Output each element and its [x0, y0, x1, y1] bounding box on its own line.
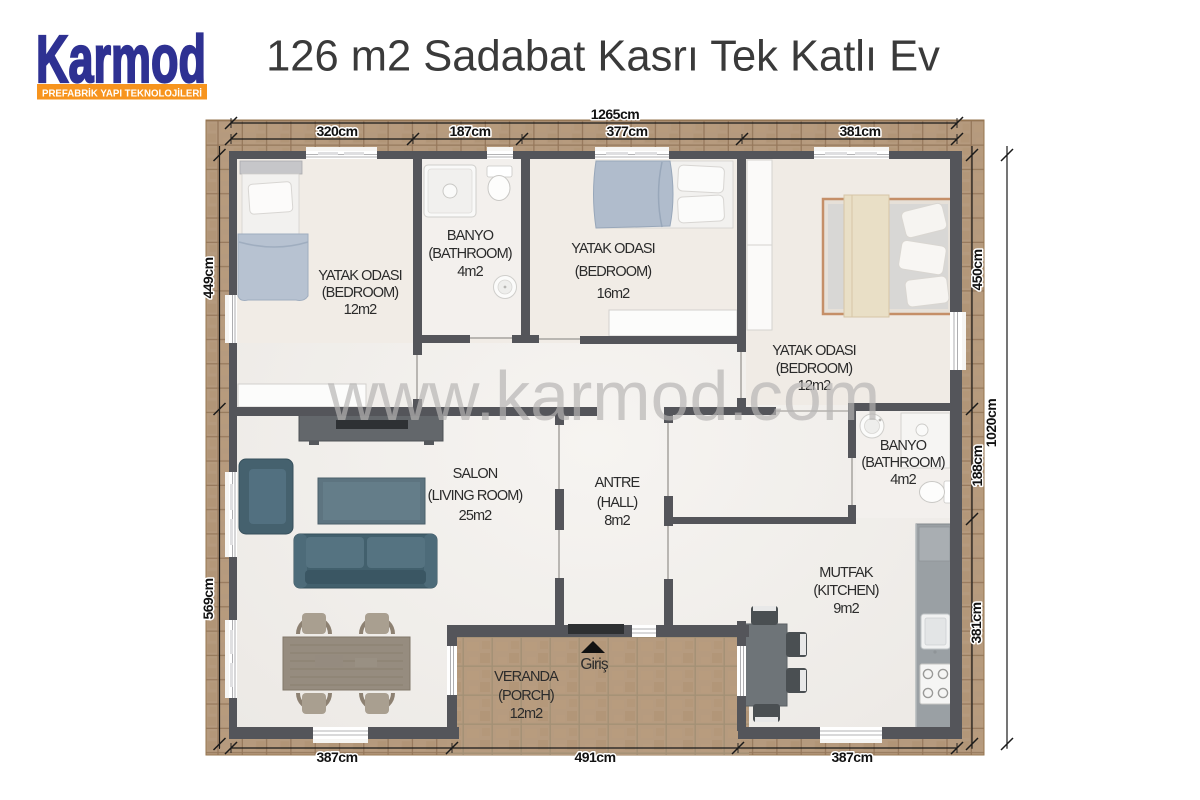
svg-text:4m2: 4m2 [890, 472, 916, 488]
svg-text:387cm: 387cm [831, 749, 872, 765]
svg-text:9m2: 9m2 [833, 601, 859, 617]
svg-text:(PORCH): (PORCH) [498, 688, 554, 704]
svg-text:450cm: 450cm [969, 249, 985, 290]
svg-text:12m2: 12m2 [344, 302, 378, 318]
svg-text:YATAK ODASI: YATAK ODASI [571, 241, 655, 257]
svg-text:(BEDROOM): (BEDROOM) [322, 285, 399, 301]
svg-text:377cm: 377cm [606, 123, 647, 139]
svg-text:491cm: 491cm [574, 749, 615, 765]
svg-text:16m2: 16m2 [597, 286, 631, 302]
svg-text:187cm: 187cm [449, 123, 490, 139]
svg-text:569cm: 569cm [200, 578, 216, 619]
svg-text:MUTFAK: MUTFAK [819, 565, 874, 581]
svg-text:PREFABRİK YAPI TEKNOLOJİLERİ: PREFABRİK YAPI TEKNOLOJİLERİ [42, 87, 202, 100]
svg-text:(BEDROOM): (BEDROOM) [575, 264, 652, 280]
svg-text:4m2: 4m2 [457, 264, 483, 280]
svg-text:449cm: 449cm [200, 257, 216, 298]
svg-text:BANYO: BANYO [880, 438, 927, 454]
svg-text:VERANDA: VERANDA [494, 669, 559, 685]
svg-text:387cm: 387cm [316, 749, 357, 765]
svg-text:(HALL): (HALL) [597, 495, 638, 511]
svg-text:12m2: 12m2 [510, 706, 544, 722]
svg-text:BANYO: BANYO [447, 228, 494, 244]
svg-text:www.karmod.com: www.karmod.com [327, 357, 880, 435]
svg-text:ANTRE: ANTRE [595, 475, 641, 491]
svg-text:25m2: 25m2 [459, 508, 493, 524]
svg-text:(BATHROOM): (BATHROOM) [861, 455, 944, 471]
svg-text:188cm: 188cm [969, 445, 985, 486]
svg-text:1020cm: 1020cm [983, 399, 999, 447]
svg-text:381cm: 381cm [968, 602, 984, 643]
svg-text:SALON: SALON [453, 466, 498, 482]
svg-text:320cm: 320cm [316, 123, 357, 139]
svg-text:8m2: 8m2 [604, 513, 630, 529]
svg-text:381cm: 381cm [839, 123, 880, 139]
svg-text:(KITCHEN): (KITCHEN) [813, 583, 878, 599]
svg-text:(BATHROOM): (BATHROOM) [428, 246, 511, 262]
svg-text:126 m2 Sadabat Kasrı Tek Katlı: 126 m2 Sadabat Kasrı Tek Katlı Ev [266, 33, 940, 81]
svg-text:YATAK ODASI: YATAK ODASI [318, 268, 402, 284]
svg-text:(LIVING ROOM): (LIVING ROOM) [428, 488, 523, 504]
svg-text:Giriş: Giriş [580, 656, 609, 673]
svg-text:1265cm: 1265cm [591, 106, 639, 122]
